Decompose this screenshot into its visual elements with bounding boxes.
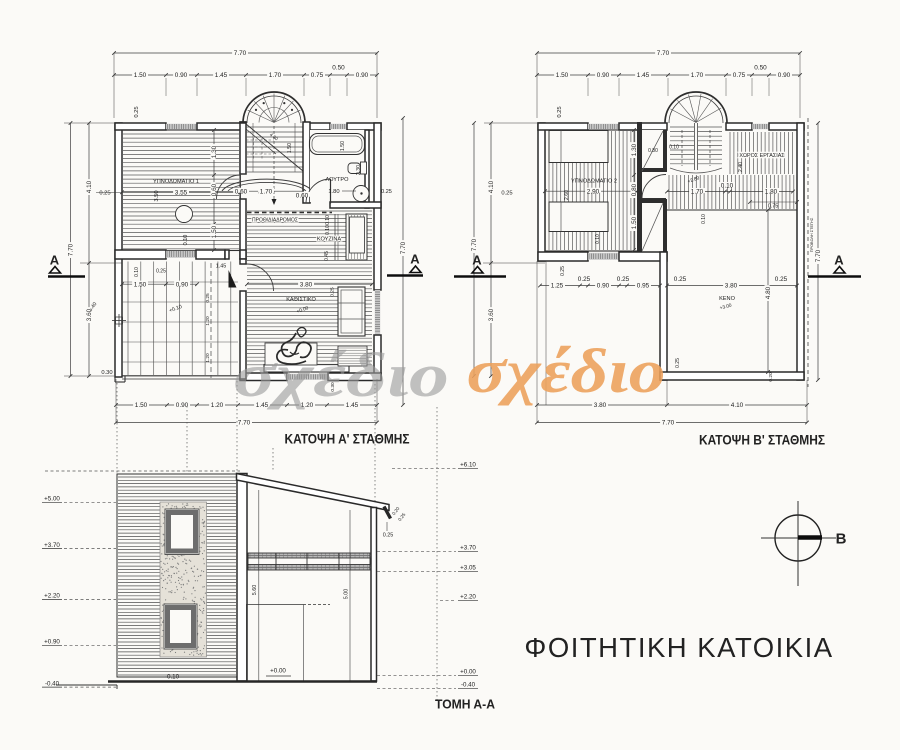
svg-text:4.80: 4.80 (765, 286, 772, 299)
svg-text:0.25: 0.25 (775, 276, 788, 283)
svg-text:+5.00: +5.00 (44, 496, 60, 503)
svg-text:+3.70: +3.70 (460, 545, 476, 552)
svg-text:0.10: 0.10 (325, 225, 331, 235)
svg-text:-0.10: -0.10 (165, 674, 180, 681)
svg-text:+6.10: +6.10 (460, 462, 476, 469)
svg-text:2.60: 2.60 (564, 190, 570, 200)
svg-text:B: B (836, 531, 847, 548)
svg-text:ΤΟΜΗ Α-Α: ΤΟΜΗ Α-Α (435, 697, 496, 712)
svg-text:4.10: 4.10 (488, 180, 495, 193)
svg-text:0.50: 0.50 (754, 65, 767, 72)
svg-text:ΠΡΟΒΟΛΗ ΣΤΕΓΗΣ: ΠΡΟΒΟΛΗ ΣΤΕΓΗΣ (810, 217, 814, 252)
svg-text:3.80: 3.80 (725, 283, 738, 290)
svg-text:0.25: 0.25 (617, 276, 630, 283)
svg-text:0.25: 0.25 (381, 189, 392, 195)
svg-text:-0.40: -0.40 (45, 680, 60, 687)
svg-text:1.45: 1.45 (216, 264, 227, 270)
svg-text:7.70: 7.70 (815, 249, 822, 262)
svg-text:+3.05: +3.05 (460, 565, 476, 572)
svg-text:0.25: 0.25 (383, 533, 394, 539)
svg-text:ΦΟΙΤΗΤΙΚΗ ΚΑΤΟΙΚΙΑ: ΦΟΙΤΗΤΙΚΗ ΚΑΤΟΙΚΙΑ (524, 632, 833, 663)
svg-text:3.50: 3.50 (154, 190, 160, 201)
svg-text:0.25: 0.25 (578, 276, 591, 283)
svg-text:1.25: 1.25 (551, 283, 564, 290)
svg-text:1.50: 1.50 (556, 72, 569, 79)
svg-text:1.30: 1.30 (631, 143, 638, 156)
svg-text:4.10: 4.10 (86, 180, 93, 193)
svg-text:1.30: 1.30 (211, 145, 218, 158)
svg-text:ΚΑΘΙΣΤΙΚΟ: ΚΑΘΙΣΤΙΚΟ (286, 297, 316, 303)
svg-text:A: A (410, 252, 420, 267)
svg-text:0.50: 0.50 (332, 65, 345, 72)
svg-text:ΚΑΤΟΨΗ Α' ΣΤΑΘΜΗΣ: ΚΑΤΟΨΗ Α' ΣΤΑΘΜΗΣ (285, 432, 410, 447)
svg-text:0.90: 0.90 (778, 72, 791, 79)
svg-text:0.10: 0.10 (183, 235, 189, 246)
svg-text:ΧΩΡΟΣ ΕΡΓΑΣΙΑΣ: ΧΩΡΟΣ ΕΡΓΑΣΙΑΣ (739, 153, 785, 159)
svg-text:1.50: 1.50 (135, 402, 148, 409)
svg-text:+0.00: +0.00 (460, 669, 476, 676)
svg-text:3.60: 3.60 (86, 308, 93, 321)
svg-text:1.50: 1.50 (631, 216, 638, 229)
svg-text:3.60: 3.60 (488, 308, 495, 321)
svg-text:4.10: 4.10 (731, 402, 744, 409)
svg-text:1.70: 1.70 (691, 189, 704, 196)
svg-text:ΚΟΥΖΙΝΑ: ΚΟΥΖΙΝΑ (317, 237, 341, 243)
svg-text:1.70: 1.70 (260, 188, 273, 195)
svg-text:1.70: 1.70 (269, 72, 282, 79)
svg-text:0.60: 0.60 (296, 192, 309, 199)
svg-text:0.25: 0.25 (134, 106, 140, 117)
svg-text:1.50: 1.50 (134, 281, 147, 288)
svg-text:0.20: 0.20 (768, 372, 774, 382)
svg-text:+2.20: +2.20 (44, 593, 60, 600)
svg-text:A: A (472, 253, 482, 268)
svg-text:0.90: 0.90 (176, 402, 189, 409)
svg-text:0.25: 0.25 (501, 191, 512, 197)
svg-text:0.80: 0.80 (631, 183, 638, 196)
svg-text:0.95: 0.95 (637, 283, 650, 290)
svg-text:7.70: 7.70 (234, 50, 247, 57)
svg-text:7.70: 7.70 (68, 243, 75, 256)
svg-text:5.60: 5.60 (252, 585, 258, 596)
svg-text:1.50: 1.50 (134, 72, 147, 79)
svg-text:5.00: 5.00 (344, 589, 350, 600)
svg-text:1.45: 1.45 (215, 72, 228, 79)
svg-text:+0.90: +0.90 (44, 639, 60, 646)
svg-text:0.75: 0.75 (311, 72, 324, 79)
svg-text:ΚΕΝΟ: ΚΕΝΟ (719, 296, 736, 302)
svg-text:0.25: 0.25 (156, 269, 166, 275)
svg-text:0.30: 0.30 (101, 370, 112, 376)
svg-text:1.70: 1.70 (691, 72, 704, 79)
svg-text:0.25: 0.25 (99, 191, 110, 197)
svg-text:3.55: 3.55 (175, 189, 188, 196)
svg-text:7.70: 7.70 (238, 420, 251, 427)
svg-text:0.60: 0.60 (211, 183, 218, 196)
svg-text:0.90: 0.90 (597, 72, 610, 79)
svg-text:7.70: 7.70 (471, 238, 478, 251)
svg-text:ΚΑΤΟΨΗ Β' ΣΤΑΘΜΗΣ: ΚΑΤΟΨΗ Β' ΣΤΑΘΜΗΣ (699, 433, 825, 448)
svg-text:0.60: 0.60 (235, 188, 248, 195)
svg-text:0.10: 0.10 (595, 234, 601, 244)
svg-text:2.30: 2.30 (356, 165, 362, 175)
svg-text:1.20: 1.20 (211, 402, 224, 409)
svg-text:0.10: 0.10 (701, 214, 707, 224)
svg-text:0.75: 0.75 (733, 72, 746, 79)
svg-text:A: A (834, 253, 844, 268)
svg-text:1.50: 1.50 (340, 141, 346, 151)
svg-text:0.10: 0.10 (134, 267, 140, 277)
svg-text:1.50: 1.50 (211, 225, 218, 238)
svg-text:0.25: 0.25 (557, 106, 563, 117)
svg-text:0.90: 0.90 (356, 72, 369, 79)
svg-text:0.25: 0.25 (560, 266, 566, 276)
svg-text:0.80: 0.80 (648, 148, 658, 154)
svg-text:1.50: 1.50 (287, 143, 293, 153)
svg-text:σχέδιο: σχέδιο (233, 342, 449, 410)
svg-text:σχέδιο: σχέδιο (467, 338, 666, 406)
svg-text:0.25: 0.25 (205, 293, 211, 303)
svg-text:2.90: 2.90 (587, 188, 600, 195)
svg-text:7.70: 7.70 (400, 241, 407, 254)
svg-text:1.20: 1.20 (205, 316, 211, 326)
svg-text:0.10: 0.10 (669, 145, 679, 151)
svg-text:ΠΡΟΘ/ΔΙΑΔΡΟΜΟΣ: ΠΡΟΘ/ΔΙΑΔΡΟΜΟΣ (252, 218, 298, 224)
svg-text:3.80: 3.80 (300, 281, 313, 288)
svg-text:-0.40: -0.40 (461, 682, 476, 689)
svg-text:1.80: 1.80 (328, 189, 339, 195)
svg-text:1.80: 1.80 (765, 189, 778, 196)
svg-text:7.70: 7.70 (662, 420, 675, 427)
svg-text:+2.20: +2.20 (460, 594, 476, 601)
svg-text:0.90: 0.90 (176, 281, 189, 288)
svg-text:ΥΠΝΟΔΩΜΑΤΙΟ 2: ΥΠΝΟΔΩΜΑΤΙΟ 2 (571, 179, 617, 185)
svg-text:ΛΟΥΤΡΟ: ΛΟΥΤΡΟ (325, 177, 349, 183)
svg-text:0.25: 0.25 (330, 287, 336, 297)
svg-text:1.45: 1.45 (637, 72, 650, 79)
svg-text:0.10: 0.10 (721, 183, 734, 190)
svg-text:0.10: 0.10 (325, 215, 331, 225)
svg-text:0.25: 0.25 (675, 358, 681, 368)
svg-text:+0.00: +0.00 (270, 668, 286, 675)
svg-text:7.70: 7.70 (657, 50, 670, 57)
svg-text:0.25: 0.25 (674, 276, 687, 283)
svg-text:0.90: 0.90 (597, 283, 610, 290)
svg-text:+3.70: +3.70 (44, 542, 60, 549)
svg-text:1.20: 1.20 (205, 353, 211, 363)
svg-text:0.45: 0.45 (324, 251, 330, 261)
svg-text:0.90: 0.90 (175, 72, 188, 79)
svg-text:A: A (50, 253, 60, 268)
svg-text:2.40: 2.40 (738, 162, 744, 172)
svg-text:ΥΠΝΟΔΩΜΑΤΙΟ 1: ΥΠΝΟΔΩΜΑΤΙΟ 1 (153, 179, 199, 185)
